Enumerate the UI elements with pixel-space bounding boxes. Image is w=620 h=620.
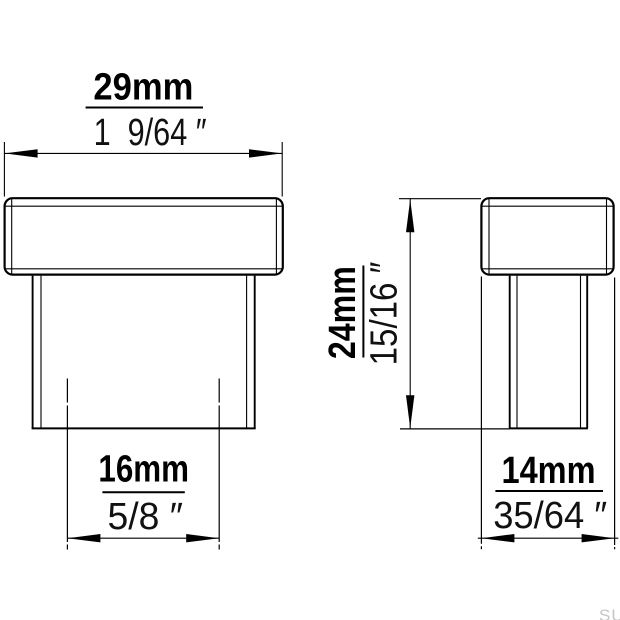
svg-text:5/8 ″: 5/8 ″ bbox=[108, 496, 184, 538]
svg-text:1 9/64 ″: 1 9/64 ″ bbox=[94, 112, 207, 154]
svg-text:24mm: 24mm bbox=[322, 266, 364, 359]
svg-text:16mm: 16mm bbox=[98, 448, 189, 490]
svg-text:29mm: 29mm bbox=[93, 66, 193, 108]
svg-text:SU: SU bbox=[599, 606, 620, 620]
svg-text:14mm: 14mm bbox=[502, 450, 596, 492]
svg-text:15/16 ″: 15/16 ″ bbox=[363, 262, 405, 366]
svg-text:35/64 ″: 35/64 ″ bbox=[493, 495, 607, 537]
